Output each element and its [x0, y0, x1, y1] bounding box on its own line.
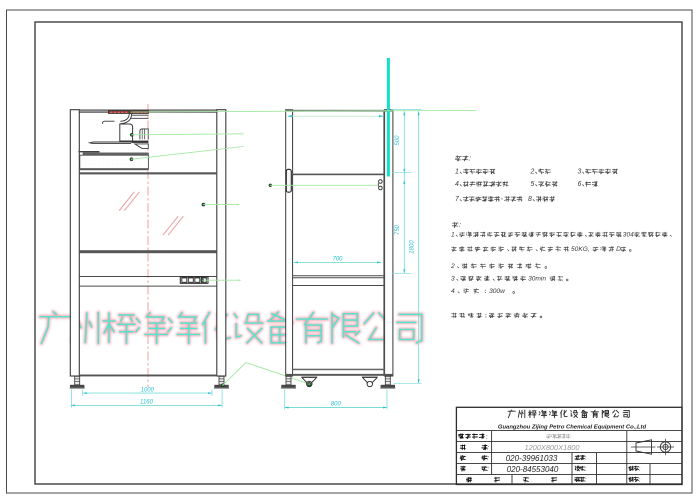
svg-text:1: 1	[451, 232, 455, 239]
svg-text::: :	[585, 466, 587, 473]
svg-text:3: 3	[578, 169, 582, 176]
svg-text::: :	[639, 476, 641, 483]
svg-text:2: 2	[450, 263, 455, 270]
svg-text::: :	[459, 220, 461, 229]
svg-text:1000: 1000	[141, 387, 155, 393]
svg-text:300w: 300w	[489, 288, 506, 295]
svg-text::: :	[486, 433, 488, 440]
svg-text::: :	[469, 154, 471, 163]
svg-text:1200X800X1800: 1200X800X1800	[524, 443, 580, 452]
svg-text:304: 304	[623, 232, 634, 239]
svg-text:1800: 1800	[410, 240, 416, 254]
svg-text:4: 4	[455, 181, 459, 188]
svg-text::: :	[487, 466, 489, 473]
svg-text:3: 3	[451, 276, 455, 283]
svg-text::: :	[487, 455, 489, 462]
svg-text:Guangzhou Zijing Petro Chemica: Guangzhou Zijing Petro Chemical Equipmen…	[498, 425, 647, 431]
svg-text:4: 4	[451, 288, 455, 295]
svg-text:800: 800	[331, 401, 342, 407]
svg-text:2: 2	[530, 169, 535, 176]
svg-text::: :	[585, 455, 587, 462]
svg-text:50KG,: 50KG,	[571, 246, 590, 253]
svg-text::: :	[487, 444, 489, 451]
svg-text:750: 750	[395, 224, 401, 235]
svg-text:020-84553040: 020-84553040	[507, 465, 559, 474]
svg-text:5: 5	[531, 181, 535, 188]
svg-text::: :	[639, 466, 641, 473]
svg-text:30min: 30min	[528, 276, 546, 283]
svg-text:D: D	[616, 246, 621, 253]
svg-text:6: 6	[578, 181, 582, 188]
svg-text:1160: 1160	[140, 400, 154, 406]
svg-text:500: 500	[395, 135, 401, 146]
svg-text:020-39961033: 020-39961033	[506, 454, 558, 463]
svg-text:8: 8	[528, 196, 532, 203]
svg-text:700: 700	[332, 256, 343, 262]
svg-text::: :	[585, 476, 587, 483]
svg-text:1: 1	[455, 169, 459, 176]
